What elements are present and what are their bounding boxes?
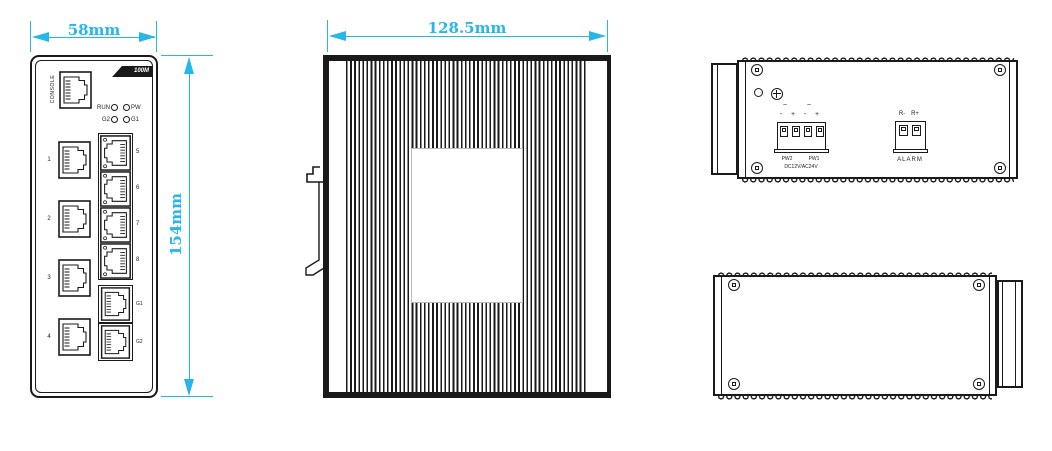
bracket-edge-line — [1002, 282, 1003, 386]
led-pw-label: PW — [131, 105, 147, 112]
dim-extension-line — [156, 21, 157, 52]
polarity-sign: - — [800, 111, 810, 119]
top-view-din-bracket — [711, 63, 738, 175]
port-2-label: 2 — [44, 216, 54, 223]
g1-led-indicator — [123, 116, 130, 123]
corner-screw — [973, 279, 985, 291]
port-3-label: 3 — [44, 275, 54, 282]
polarity-sign: + — [788, 111, 798, 119]
led-g2-label: G2 — [90, 117, 110, 124]
body-edge-line — [745, 62, 746, 177]
dim-arrow-right — [139, 32, 156, 42]
bottom-finned-edge — [717, 396, 992, 404]
ethernet-port-8 — [99, 243, 132, 279]
dim-arrow-right — [589, 31, 606, 41]
ethernet-port-7 — [99, 207, 132, 243]
corner-screw — [751, 64, 763, 76]
corner-screw — [728, 279, 740, 291]
body-edge-line — [1009, 62, 1010, 177]
ac-mark: ~ — [779, 102, 791, 110]
console-port-label: CONSOLE — [50, 69, 56, 109]
label-plate — [411, 148, 523, 303]
dim-extension-line — [161, 396, 213, 397]
corner-screw — [728, 378, 740, 390]
pw2-label: PW2 — [776, 156, 798, 162]
polarity-sign: + — [812, 111, 822, 119]
terminal-pin — [804, 126, 812, 137]
dim-extension-line — [327, 20, 328, 52]
bracket-edge-line — [717, 65, 718, 173]
port-4-label: 4 — [44, 334, 54, 341]
port-8-label: 8 — [136, 257, 146, 264]
dim-arrow-down — [184, 379, 194, 396]
alarm-label: ALARM — [885, 157, 935, 164]
corner-screw — [973, 378, 985, 390]
corner-screw — [994, 162, 1006, 174]
terminal-pin — [912, 125, 921, 136]
ac-mark: ~ — [803, 102, 815, 110]
terminal-base — [893, 149, 928, 153]
terminal-pin — [792, 126, 800, 137]
led-run-label: RUN — [90, 105, 110, 112]
din-rail-clip — [299, 164, 325, 284]
terminal-pin — [780, 126, 788, 137]
ground-screw — [771, 88, 783, 100]
side-width-dimension: 128.5mm — [407, 20, 527, 36]
dim-arrow-left — [32, 32, 49, 42]
body-edge-line — [989, 277, 990, 394]
console-port — [59, 70, 92, 110]
dim-arrow-left — [329, 31, 346, 41]
corner-screw — [994, 64, 1006, 76]
ethernet-port-5 — [99, 135, 132, 171]
bottom-finned-edge — [741, 179, 1014, 187]
ethernet-port-2 — [58, 200, 91, 238]
terminal-pin — [816, 126, 824, 137]
front-height-dimension: 154mm — [168, 196, 184, 256]
uplink-port-g1 — [100, 287, 131, 321]
ethernet-port-1 — [58, 141, 91, 179]
dim-extension-line — [607, 20, 608, 52]
dim-line — [189, 59, 190, 393]
ethernet-port-4 — [58, 318, 91, 356]
run-led-indicator — [111, 104, 118, 111]
port-5-label: 5 — [136, 149, 146, 156]
body-edge-line — [721, 277, 722, 394]
bottom-view-din-bracket — [997, 280, 1023, 388]
uplink-g1-label: G1 — [136, 301, 150, 307]
terminal-base — [774, 149, 829, 153]
dim-extension-line — [30, 21, 31, 52]
front-width-dimension: 58mm — [50, 22, 138, 38]
mounting-hole — [754, 88, 763, 97]
pw1-label: PW1 — [803, 156, 825, 162]
switch-dimension-drawing: 58mm 154mm CONSOLE 100M RUN PW G2 G1 1 2… — [0, 0, 1052, 451]
pw-led-indicator — [123, 104, 130, 111]
port-1-label: 1 — [44, 157, 54, 164]
dim-extension-line — [161, 55, 213, 56]
port-6-label: 6 — [136, 185, 146, 192]
uplink-g2-label: G2 — [136, 339, 150, 345]
voltage-label: DC12V/AC24V — [770, 164, 832, 170]
terminal-pin — [899, 125, 908, 136]
g2-led-indicator — [111, 116, 118, 123]
relay-plus-label: R+ — [905, 111, 925, 118]
bracket-edge-line — [1015, 282, 1016, 386]
led-g1-label: G1 — [131, 117, 147, 124]
ethernet-port-6 — [99, 171, 132, 207]
port-7-label: 7 — [136, 221, 146, 228]
corner-screw — [751, 162, 763, 174]
polarity-sign: - — [776, 111, 786, 119]
uplink-port-g2 — [100, 325, 131, 359]
dim-arrow-up — [184, 57, 194, 74]
bottom-view-body — [713, 275, 997, 396]
ethernet-port-3 — [58, 259, 91, 297]
